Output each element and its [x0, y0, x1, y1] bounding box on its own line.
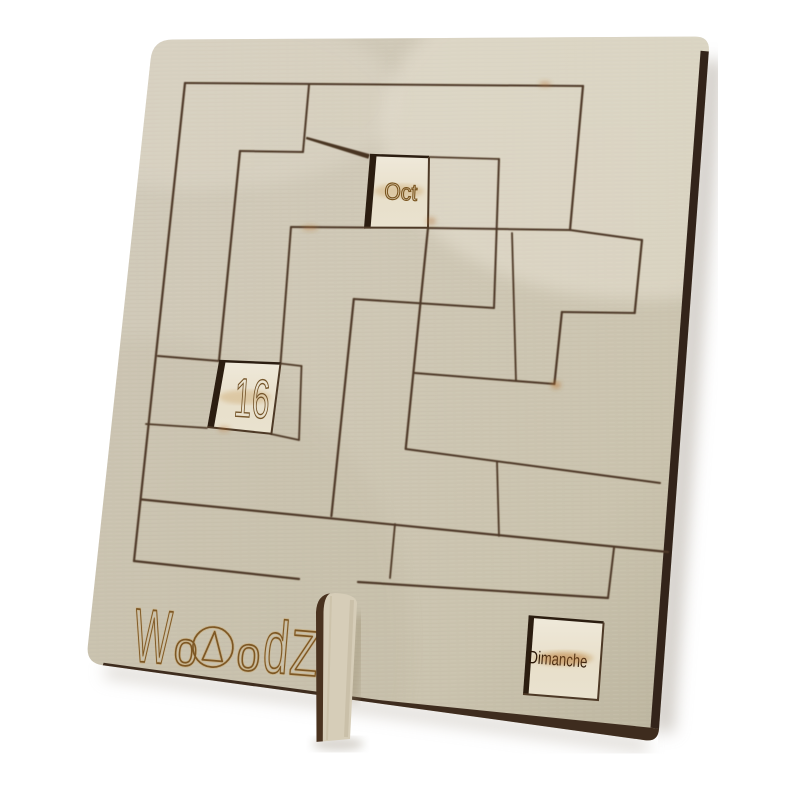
svg-text:W: W: [131, 592, 175, 680]
svg-text:Oct: Oct: [384, 178, 419, 206]
svg-text:o: o: [235, 626, 263, 682]
svg-text:o: o: [172, 621, 200, 677]
svg-text:16: 16: [232, 366, 272, 431]
